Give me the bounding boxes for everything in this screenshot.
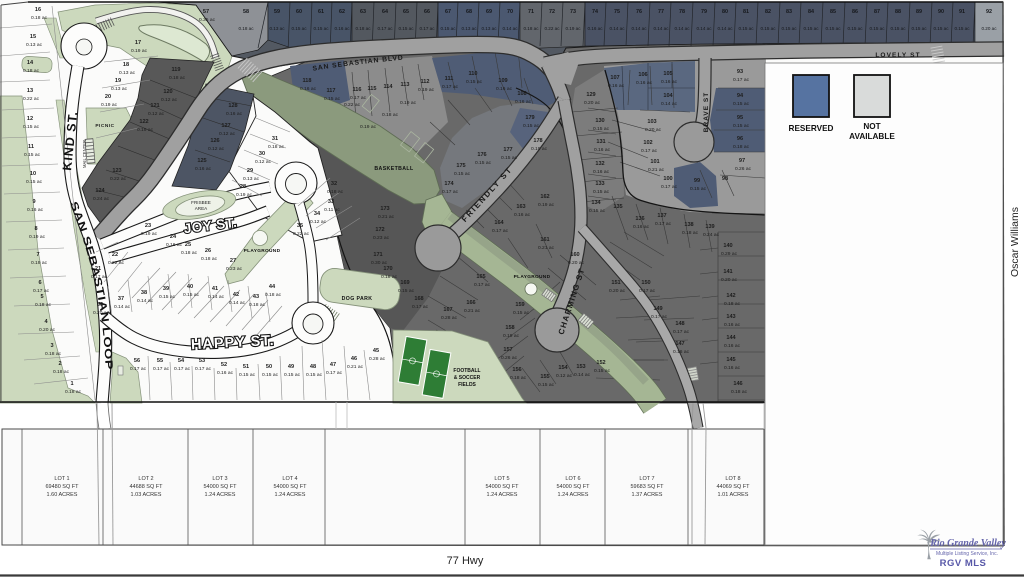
svg-text:132: 132: [595, 161, 604, 167]
svg-text:0.15 ac: 0.15 ac: [760, 26, 776, 31]
svg-text:0.18 ac: 0.18 ac: [23, 68, 40, 74]
svg-text:PICNIC: PICNIC: [95, 123, 114, 129]
svg-text:0.15 ac: 0.15 ac: [306, 372, 323, 378]
svg-text:0.16 ac: 0.16 ac: [608, 83, 625, 89]
svg-text:1.24 ACRES: 1.24 ACRES: [558, 492, 589, 498]
svg-text:0.15 ac: 0.15 ac: [738, 26, 754, 31]
svg-text:0.17 ac: 0.17 ac: [377, 26, 393, 31]
svg-text:53: 53: [199, 358, 205, 364]
svg-text:161: 161: [540, 237, 549, 243]
svg-text:9: 9: [32, 199, 35, 205]
svg-text:0.20 ac: 0.20 ac: [584, 100, 601, 106]
svg-text:1.24 ACRES: 1.24 ACRES: [205, 492, 236, 498]
svg-text:101: 101: [650, 159, 659, 165]
svg-text:0.18 ac: 0.18 ac: [327, 189, 344, 195]
svg-text:LOVELY ST: LOVELY ST: [875, 52, 920, 59]
svg-text:40: 40: [187, 284, 193, 290]
svg-text:0.15 ac: 0.15 ac: [869, 26, 885, 31]
svg-text:92: 92: [986, 9, 992, 15]
svg-text:124: 124: [95, 188, 105, 194]
svg-text:63: 63: [360, 9, 366, 15]
svg-text:0.18 ac: 0.18 ac: [355, 26, 371, 31]
svg-text:2: 2: [58, 361, 61, 367]
svg-text:163: 163: [516, 204, 525, 210]
svg-text:179: 179: [525, 115, 534, 121]
svg-text:0.17 ac: 0.17 ac: [655, 221, 672, 227]
svg-text:LOT 1: LOT 1: [54, 476, 69, 482]
svg-text:167: 167: [443, 307, 452, 313]
svg-text:0.17 ac: 0.17 ac: [326, 370, 343, 376]
svg-text:0.16 ac: 0.16 ac: [27, 207, 44, 213]
svg-text:0.21 ac: 0.21 ac: [538, 245, 555, 251]
svg-text:0.19 ac: 0.19 ac: [31, 260, 48, 266]
svg-text:166: 166: [466, 300, 475, 306]
svg-text:0.15 ac: 0.15 ac: [847, 26, 863, 31]
svg-text:104: 104: [663, 93, 673, 99]
svg-text:108: 108: [517, 91, 526, 97]
svg-text:114: 114: [383, 84, 393, 90]
svg-text:0.20 ac: 0.20 ac: [609, 288, 626, 294]
svg-text:47: 47: [330, 362, 336, 368]
svg-text:0.18 ac: 0.18 ac: [31, 15, 48, 21]
svg-text:62: 62: [339, 9, 345, 15]
svg-text:1.03 ACRES: 1.03 ACRES: [131, 492, 162, 498]
svg-text:0.16 ac: 0.16 ac: [724, 365, 741, 371]
svg-text:65: 65: [403, 9, 409, 15]
svg-text:97: 97: [739, 158, 745, 164]
svg-text:& SOCCER: & SOCCER: [454, 375, 481, 381]
svg-text:117: 117: [326, 88, 335, 94]
svg-text:76: 76: [636, 9, 642, 15]
svg-text:28: 28: [240, 184, 246, 190]
svg-text:0.18 ac: 0.18 ac: [201, 256, 218, 262]
svg-text:49: 49: [288, 364, 294, 370]
svg-text:13: 13: [27, 88, 33, 94]
svg-text:5: 5: [40, 294, 43, 300]
svg-text:0.23 ac: 0.23 ac: [226, 266, 243, 272]
svg-text:175: 175: [456, 163, 465, 169]
svg-text:165: 165: [476, 274, 485, 280]
svg-text:115: 115: [367, 86, 376, 92]
svg-text:118: 118: [302, 78, 311, 84]
svg-text:0.15 ac: 0.15 ac: [538, 382, 555, 388]
svg-text:87: 87: [874, 9, 880, 15]
svg-text:0.16 ac: 0.16 ac: [587, 26, 603, 31]
svg-text:24: 24: [170, 234, 177, 240]
svg-text:121: 121: [150, 103, 159, 109]
svg-text:125: 125: [197, 158, 206, 164]
svg-text:168: 168: [414, 296, 423, 302]
svg-text:LOT 4: LOT 4: [282, 476, 297, 482]
svg-text:0.13 ac: 0.13 ac: [461, 26, 477, 31]
svg-text:54000 SQ FT: 54000 SQ FT: [273, 484, 307, 490]
svg-text:0.15 ac: 0.15 ac: [954, 26, 970, 31]
svg-text:0.18 ac: 0.18 ac: [238, 26, 254, 31]
svg-text:27: 27: [230, 258, 236, 264]
svg-text:100: 100: [663, 176, 672, 182]
svg-text:151: 151: [611, 280, 620, 286]
svg-text:0.16 ac: 0.16 ac: [515, 99, 532, 105]
svg-text:0.24 ac: 0.24 ac: [93, 196, 110, 202]
svg-text:PLAYGROUND: PLAYGROUND: [244, 248, 281, 254]
svg-text:3: 3: [50, 343, 53, 349]
svg-text:0.19 ac: 0.19 ac: [360, 124, 377, 130]
svg-text:48: 48: [310, 364, 316, 370]
svg-text:0.14 ac: 0.14 ac: [653, 26, 669, 31]
svg-text:0.18 ac: 0.18 ac: [382, 112, 399, 118]
svg-text:7: 7: [36, 252, 39, 258]
svg-text:0.15 ac: 0.15 ac: [313, 26, 329, 31]
svg-text:30: 30: [259, 151, 265, 157]
svg-text:Oscar Williams: Oscar Williams: [1009, 207, 1021, 277]
svg-text:0.12 ac: 0.12 ac: [161, 97, 178, 103]
svg-text:96: 96: [737, 136, 743, 142]
svg-text:0.12 ac: 0.12 ac: [310, 219, 327, 225]
svg-text:0.14 ac: 0.14 ac: [661, 101, 678, 107]
svg-text:0.22 ac: 0.22 ac: [108, 260, 125, 266]
svg-text:177: 177: [503, 147, 512, 153]
svg-text:110: 110: [468, 71, 477, 77]
svg-text:44: 44: [269, 284, 276, 290]
svg-text:0.13 ac: 0.13 ac: [119, 70, 136, 76]
svg-text:141: 141: [723, 269, 732, 275]
svg-text:0.17 ac: 0.17 ac: [153, 366, 170, 372]
svg-text:25: 25: [185, 242, 191, 248]
svg-text:17: 17: [135, 40, 141, 46]
svg-text:54000 SQ FT: 54000 SQ FT: [556, 484, 590, 490]
svg-text:0.12 ac: 0.12 ac: [556, 373, 573, 379]
svg-text:0.12 ac: 0.12 ac: [255, 159, 272, 165]
svg-text:71: 71: [528, 9, 534, 15]
svg-text:1.24 ACRES: 1.24 ACRES: [487, 492, 518, 498]
svg-text:0.20 ac: 0.20 ac: [39, 327, 56, 333]
svg-text:0.16 ac: 0.16 ac: [633, 224, 650, 230]
svg-text:131: 131: [596, 139, 605, 145]
svg-text:158: 158: [505, 325, 514, 331]
svg-text:39: 39: [163, 286, 169, 292]
svg-text:54000 SQ FT: 54000 SQ FT: [203, 484, 237, 490]
svg-text:21: 21: [95, 266, 101, 272]
svg-text:0.18 ac: 0.18 ac: [249, 302, 266, 308]
svg-text:174: 174: [444, 181, 454, 187]
svg-text:55: 55: [157, 358, 163, 364]
svg-text:0.17 ac: 0.17 ac: [639, 288, 656, 294]
svg-text:0.14 ac: 0.14 ac: [208, 294, 225, 300]
svg-text:BRAVE ST: BRAVE ST: [703, 92, 710, 132]
svg-text:DOG PARK: DOG PARK: [342, 296, 373, 302]
svg-text:0.18 ac: 0.18 ac: [510, 375, 527, 381]
svg-text:73: 73: [570, 9, 576, 15]
svg-text:169: 169: [400, 280, 409, 286]
svg-text:82: 82: [765, 9, 771, 15]
svg-text:59: 59: [274, 9, 280, 15]
svg-text:0.15 ac: 0.15 ac: [324, 96, 341, 102]
svg-text:LOT 2: LOT 2: [138, 476, 153, 482]
svg-text:66: 66: [424, 9, 430, 15]
svg-text:149: 149: [653, 306, 662, 312]
svg-text:0.14 ac: 0.14 ac: [631, 26, 647, 31]
svg-text:16: 16: [35, 7, 41, 13]
svg-text:0.17 ac: 0.17 ac: [174, 366, 191, 372]
svg-text:1.24 ACRES: 1.24 ACRES: [275, 492, 306, 498]
svg-text:154: 154: [558, 365, 568, 371]
svg-text:10: 10: [30, 171, 36, 177]
svg-text:PLAYGROUND: PLAYGROUND: [514, 274, 551, 280]
svg-text:67: 67: [445, 9, 451, 15]
svg-text:127: 127: [221, 123, 230, 129]
svg-text:0.15 ac: 0.15 ac: [593, 126, 610, 132]
svg-text:83: 83: [786, 9, 792, 15]
svg-text:0.15 ac: 0.15 ac: [781, 26, 797, 31]
svg-text:19: 19: [115, 78, 121, 84]
svg-text:91: 91: [959, 9, 965, 15]
svg-text:94: 94: [737, 93, 744, 99]
svg-text:0.15 ac: 0.15 ac: [523, 123, 540, 129]
svg-text:0.23 ac: 0.23 ac: [373, 235, 390, 241]
svg-text:85: 85: [830, 9, 836, 15]
svg-text:0.18 ac: 0.18 ac: [381, 274, 398, 280]
svg-text:0.18 ac: 0.18 ac: [265, 292, 282, 298]
svg-text:135: 135: [613, 204, 622, 210]
svg-text:77 Hwy: 77 Hwy: [447, 555, 484, 567]
svg-text:0.17 ac: 0.17 ac: [442, 189, 459, 195]
svg-text:79: 79: [701, 9, 707, 15]
svg-text:0.17 ac: 0.17 ac: [733, 77, 750, 83]
svg-text:57: 57: [203, 9, 209, 15]
svg-text:LOT 7: LOT 7: [639, 476, 654, 482]
svg-text:0.14 ac: 0.14 ac: [229, 300, 246, 306]
svg-text:103: 103: [647, 119, 656, 125]
svg-text:0.13 ac: 0.13 ac: [243, 176, 260, 182]
svg-text:8: 8: [34, 226, 37, 232]
svg-text:22: 22: [112, 252, 118, 258]
svg-text:0.28 ac: 0.28 ac: [441, 315, 458, 321]
svg-text:0.17 ac: 0.17 ac: [412, 304, 429, 310]
svg-text:80: 80: [722, 9, 728, 15]
svg-text:0.12 ac: 0.12 ac: [219, 131, 236, 137]
svg-text:0.11 ac: 0.11 ac: [324, 207, 340, 213]
svg-text:0.28 ac: 0.28 ac: [369, 356, 386, 362]
svg-text:BASKETBALL: BASKETBALL: [374, 166, 414, 172]
svg-text:54: 54: [178, 358, 185, 364]
svg-text:58: 58: [243, 9, 249, 15]
svg-text:0.16 ac: 0.16 ac: [661, 79, 678, 85]
svg-text:138: 138: [684, 222, 693, 228]
svg-text:72: 72: [549, 9, 555, 15]
svg-text:90: 90: [938, 9, 944, 15]
svg-text:0.15 ac: 0.15 ac: [454, 171, 471, 177]
svg-text:0.15 ac: 0.15 ac: [262, 372, 279, 378]
svg-text:0.16 ac: 0.16 ac: [636, 80, 653, 86]
svg-text:0.15 ac: 0.15 ac: [501, 155, 518, 161]
svg-text:120: 120: [163, 89, 172, 95]
svg-text:0.19 ac: 0.19 ac: [418, 87, 435, 93]
svg-text:FIELDS: FIELDS: [458, 382, 476, 388]
svg-text:0.16 ac: 0.16 ac: [514, 212, 531, 218]
svg-text:20: 20: [105, 94, 111, 100]
svg-text:0.18 ac: 0.18 ac: [65, 389, 82, 395]
svg-text:133: 133: [595, 181, 604, 187]
svg-text:81: 81: [743, 9, 749, 15]
svg-text:0.15 ac: 0.15 ac: [159, 294, 176, 300]
svg-text:0.18 ac: 0.18 ac: [724, 301, 741, 307]
svg-text:LOT 5: LOT 5: [494, 476, 509, 482]
svg-text:112: 112: [420, 79, 429, 85]
svg-text:RESERVED: RESERVED: [789, 124, 834, 133]
svg-text:88: 88: [895, 9, 901, 15]
svg-text:130: 130: [595, 118, 604, 124]
svg-text:1.60 ACRES: 1.60 ACRES: [47, 492, 78, 498]
svg-text:0.18 ac: 0.18 ac: [733, 144, 750, 150]
svg-text:NOT: NOT: [863, 122, 880, 131]
svg-text:144: 144: [726, 335, 736, 341]
svg-text:46: 46: [351, 356, 357, 362]
svg-text:33: 33: [328, 199, 334, 205]
svg-text:162: 162: [540, 194, 549, 200]
svg-text:54000 SQ FT: 54000 SQ FT: [485, 484, 519, 490]
svg-text:0.16 ac: 0.16 ac: [334, 26, 350, 31]
svg-text:34: 34: [314, 211, 321, 217]
svg-text:122: 122: [139, 119, 148, 125]
svg-text:143: 143: [726, 314, 735, 320]
svg-text:155: 155: [540, 374, 549, 380]
svg-text:0.17 ac: 0.17 ac: [641, 148, 658, 154]
svg-text:56: 56: [134, 358, 140, 364]
svg-text:59683 SQ FT: 59683 SQ FT: [630, 484, 664, 490]
svg-text:0.17 ac: 0.17 ac: [661, 184, 678, 190]
svg-text:Multiple Listing Service, Inc.: Multiple Listing Service, Inc.: [936, 551, 998, 557]
svg-text:0.15 ac: 0.15 ac: [291, 26, 307, 31]
svg-text:0.18 ac: 0.18 ac: [169, 75, 186, 81]
svg-text:106: 106: [638, 72, 647, 78]
svg-text:18: 18: [123, 62, 129, 68]
svg-text:0.17 ac: 0.17 ac: [350, 95, 367, 101]
svg-text:145: 145: [726, 357, 735, 363]
svg-text:102: 102: [643, 140, 652, 146]
svg-text:0.22 ac: 0.22 ac: [110, 176, 127, 182]
svg-text:0.21 ac: 0.21 ac: [347, 364, 364, 370]
svg-text:0.29 ac: 0.29 ac: [721, 251, 738, 257]
svg-text:0.16 ac: 0.16 ac: [300, 86, 317, 92]
svg-text:LOT 8: LOT 8: [725, 476, 740, 482]
svg-text:0.15 ac: 0.15 ac: [26, 179, 43, 185]
svg-text:74: 74: [592, 9, 598, 15]
svg-text:0.15 ac: 0.15 ac: [475, 160, 492, 166]
svg-text:146: 146: [733, 381, 742, 387]
svg-text:0.16 ac: 0.16 ac: [226, 111, 243, 117]
svg-text:0.15 ac: 0.15 ac: [239, 372, 256, 378]
svg-text:171: 171: [373, 252, 382, 258]
svg-text:0.16 ac: 0.16 ac: [166, 242, 183, 248]
svg-text:111: 111: [445, 76, 454, 82]
svg-text:0.22 ac: 0.22 ac: [23, 96, 40, 102]
svg-text:93: 93: [737, 69, 743, 75]
svg-text:0.15 ac: 0.15 ac: [733, 101, 750, 107]
svg-text:152: 152: [596, 360, 605, 366]
svg-text:0.17 ac: 0.17 ac: [130, 366, 147, 372]
svg-text:51: 51: [243, 364, 249, 370]
svg-text:52: 52: [221, 362, 227, 368]
svg-text:0.20 ac: 0.20 ac: [568, 260, 585, 266]
svg-text:0.18 ac: 0.18 ac: [268, 144, 285, 150]
svg-text:0.17 ac: 0.17 ac: [195, 366, 212, 372]
svg-text:0.14 ac: 0.14 ac: [137, 298, 154, 304]
svg-text:119: 119: [171, 67, 180, 73]
svg-text:153: 153: [576, 364, 585, 370]
svg-text:0.35 ac: 0.35 ac: [199, 17, 216, 23]
svg-text:43: 43: [253, 294, 259, 300]
svg-text:36: 36: [97, 302, 103, 308]
svg-text:0.19 ac: 0.19 ac: [565, 26, 581, 31]
svg-text:MAIL CENTER: MAIL CENTER: [82, 140, 87, 168]
svg-text:32: 32: [331, 181, 337, 187]
svg-text:86: 86: [852, 9, 858, 15]
svg-text:0.19 ac: 0.19 ac: [131, 48, 148, 54]
svg-text:98: 98: [722, 176, 728, 182]
svg-text:0.15 ac: 0.15 ac: [23, 124, 40, 130]
svg-text:77: 77: [658, 9, 664, 15]
svg-text:0.22 ac: 0.22 ac: [544, 26, 560, 31]
svg-text:69480 SQ FT: 69480 SQ FT: [45, 484, 79, 490]
svg-text:0.18 ac: 0.18 ac: [53, 369, 70, 375]
svg-text:0.21 ac: 0.21 ac: [378, 214, 395, 220]
svg-text:45: 45: [373, 348, 379, 354]
svg-text:1.01 ACRES: 1.01 ACRES: [718, 492, 749, 498]
svg-text:0.16 ac: 0.16 ac: [594, 147, 611, 153]
svg-text:0.21 ac: 0.21 ac: [648, 167, 665, 173]
svg-text:84: 84: [808, 9, 814, 15]
svg-text:0.19 ac: 0.19 ac: [400, 100, 417, 106]
svg-text:15: 15: [30, 34, 36, 40]
svg-text:0.17 ac: 0.17 ac: [419, 26, 435, 31]
svg-text:0.22 ac: 0.22 ac: [293, 231, 310, 237]
svg-text:Rio Grande Valley: Rio Grande Valley: [929, 538, 1006, 549]
svg-text:AREA: AREA: [195, 206, 208, 211]
svg-text:147: 147: [675, 341, 684, 347]
svg-text:0.17 ac: 0.17 ac: [91, 274, 108, 280]
svg-text:0.16 ac: 0.16 ac: [673, 349, 690, 355]
svg-text:0.19 ac: 0.19 ac: [236, 192, 253, 198]
svg-text:0.15 ac: 0.15 ac: [284, 372, 301, 378]
svg-text:160: 160: [570, 252, 579, 258]
svg-text:0.18 ac: 0.18 ac: [45, 351, 62, 357]
svg-text:0.15 ac: 0.15 ac: [803, 26, 819, 31]
svg-text:128: 128: [228, 103, 237, 109]
svg-text:0.12 ac: 0.12 ac: [208, 146, 225, 152]
svg-text:0.20 ac: 0.20 ac: [721, 277, 738, 283]
svg-text:0.12 ac: 0.12 ac: [148, 111, 165, 117]
svg-text:176: 176: [477, 152, 486, 158]
svg-text:0.19 ac: 0.19 ac: [531, 146, 548, 152]
svg-text:0.15 ac: 0.15 ac: [513, 310, 530, 316]
svg-text:0.13 ac: 0.13 ac: [269, 26, 285, 31]
svg-text:0.13 ac: 0.13 ac: [111, 86, 128, 92]
svg-text:0.16 ac: 0.16 ac: [217, 370, 234, 376]
svg-text:0.20 ac: 0.20 ac: [93, 310, 110, 316]
svg-text:75: 75: [614, 9, 620, 15]
svg-text:134: 134: [591, 200, 601, 206]
svg-text:172: 172: [375, 227, 384, 233]
svg-text:50: 50: [266, 364, 272, 370]
svg-text:0.15 ac: 0.15 ac: [825, 26, 841, 31]
svg-text:0.18 ac: 0.18 ac: [731, 389, 748, 395]
svg-text:105: 105: [663, 71, 672, 77]
svg-text:0.19 ac: 0.19 ac: [137, 127, 154, 133]
svg-text:41: 41: [212, 286, 218, 292]
svg-text:78: 78: [679, 9, 685, 15]
svg-text:0.15 ac: 0.15 ac: [24, 152, 41, 158]
svg-text:0.17 ac: 0.17 ac: [474, 282, 491, 288]
